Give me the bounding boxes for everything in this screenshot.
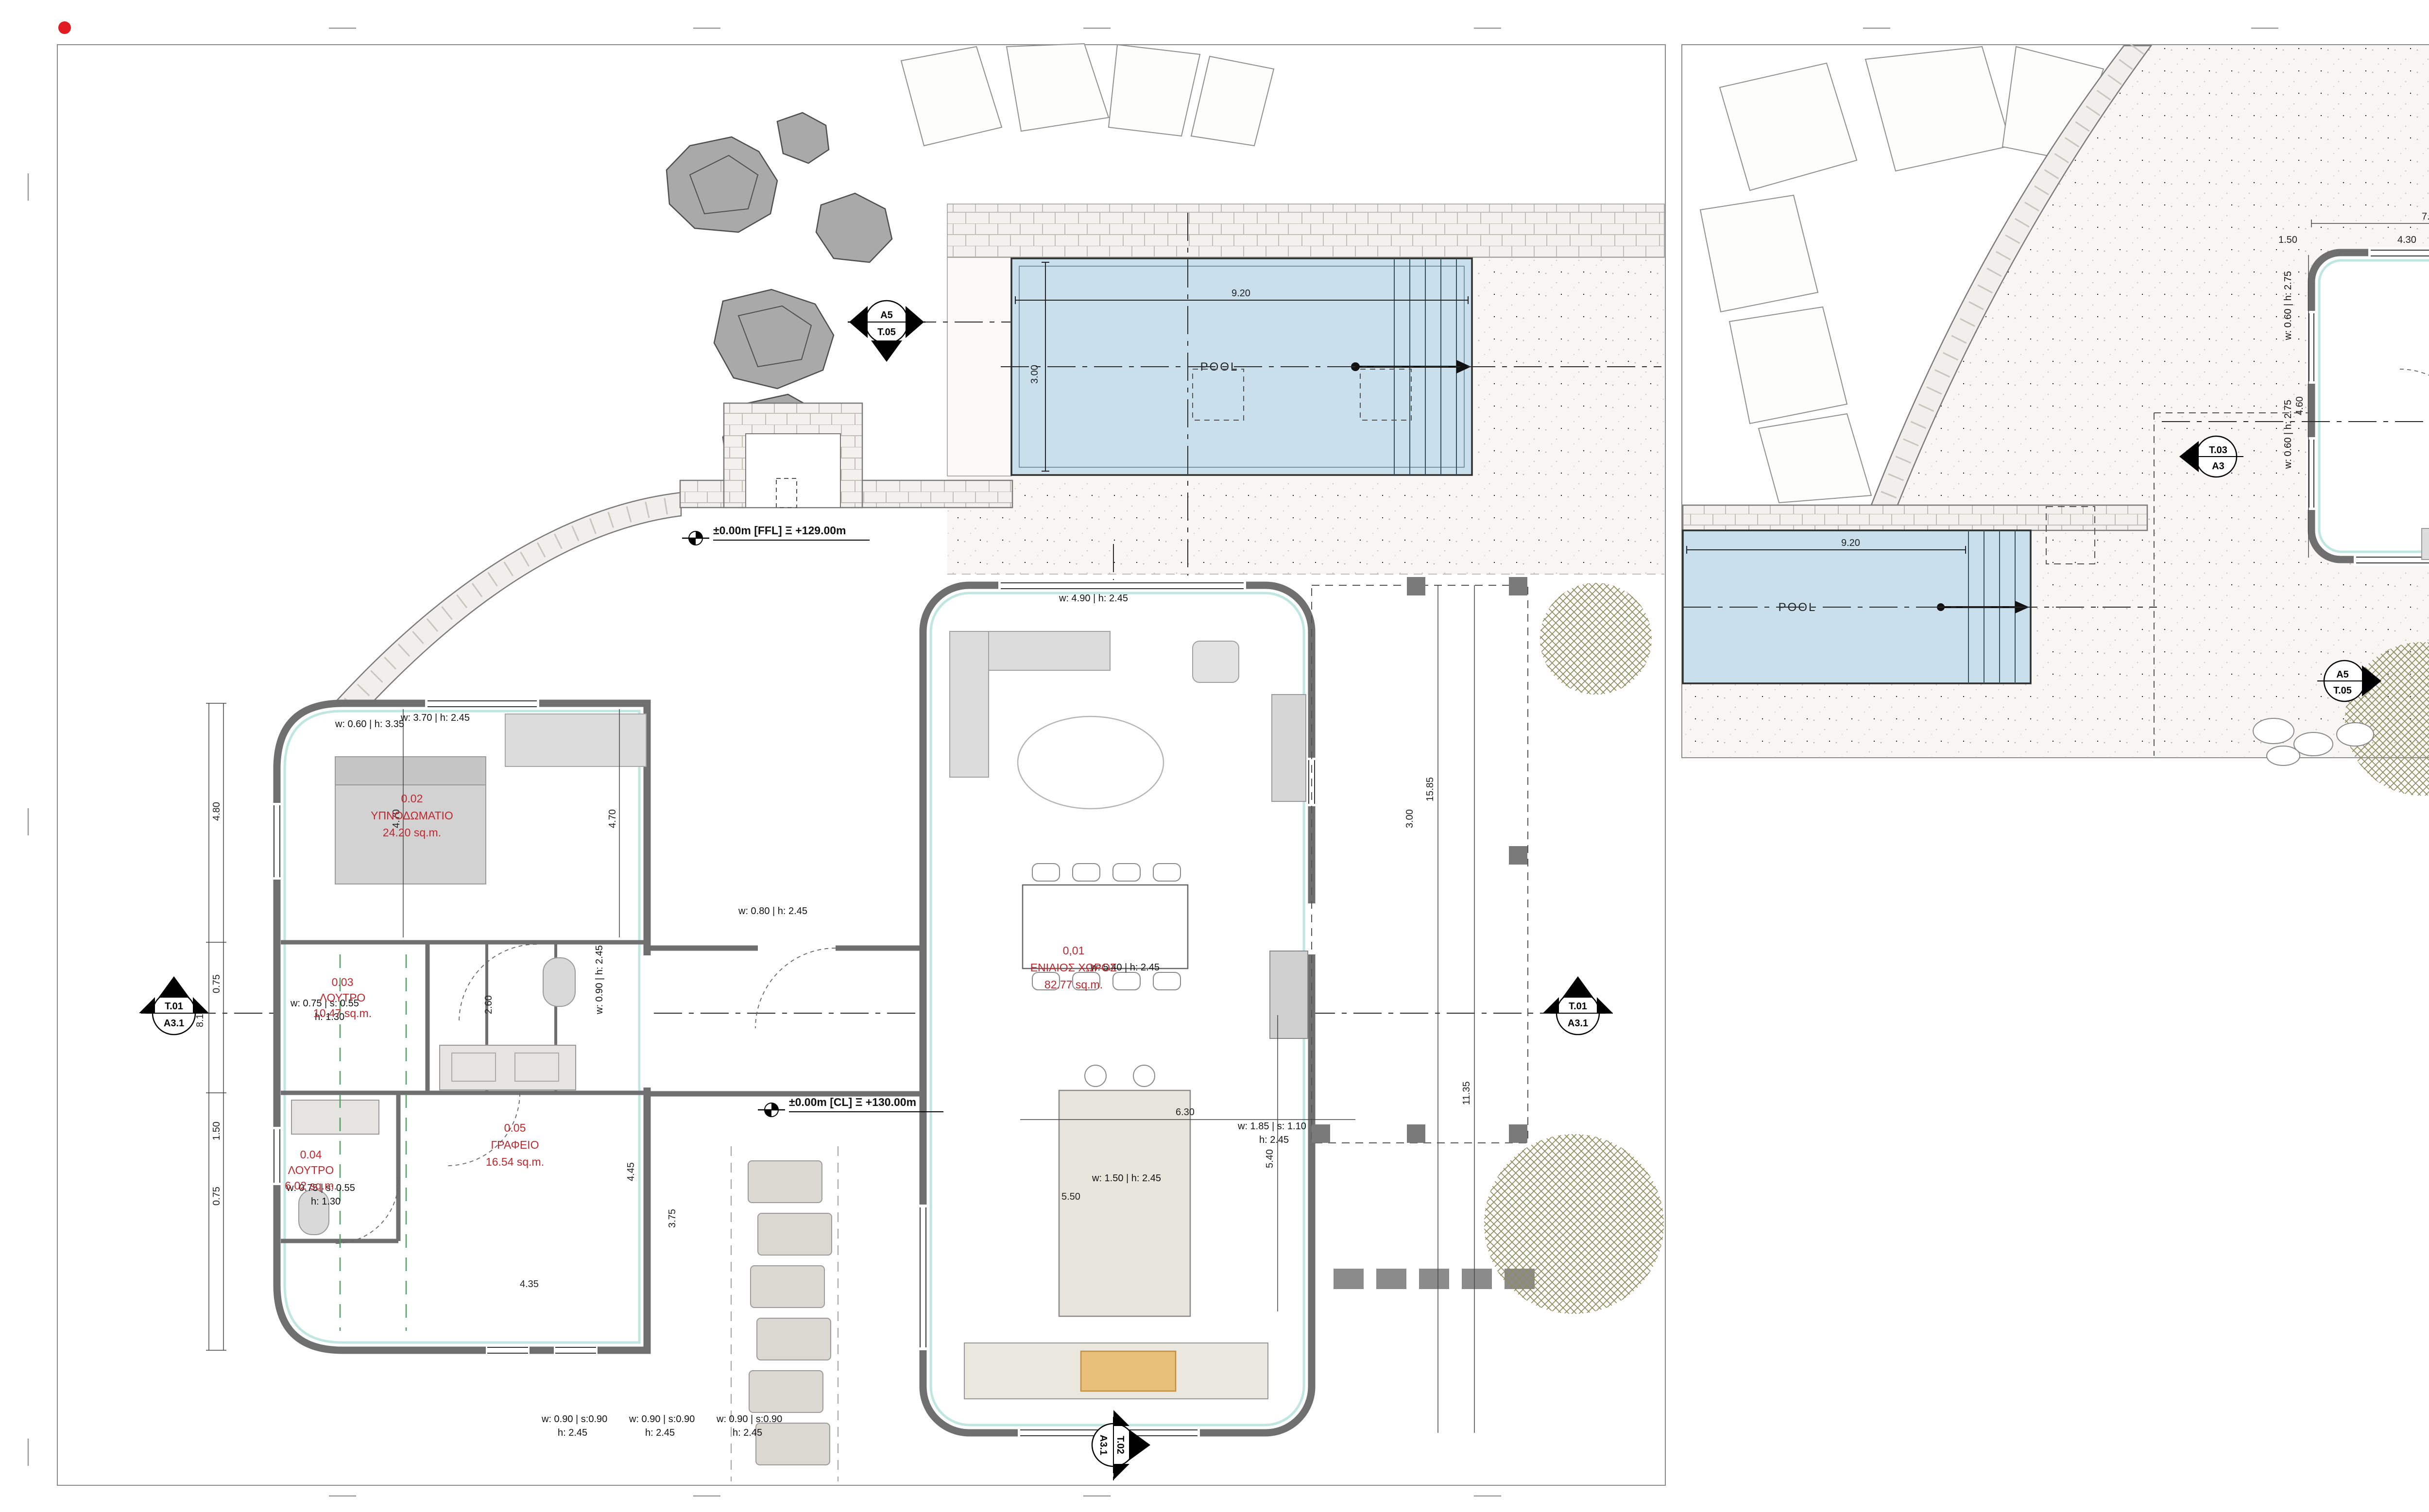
svg-text:0.05: 0.05 bbox=[504, 1121, 526, 1134]
svg-text:w: 0.90 | s:0.90: w: 0.90 | s:0.90 bbox=[716, 1414, 782, 1425]
right-wing bbox=[917, 580, 1317, 1439]
architectural-drawing-sheet: { "colors":{"accent_red":"#e01b22","room… bbox=[0, 0, 2429, 1502]
svg-text:2.60: 2.60 bbox=[483, 995, 494, 1014]
svg-text:3.75: 3.75 bbox=[667, 1209, 678, 1228]
svg-text:A3.1: A3.1 bbox=[164, 1018, 184, 1029]
svg-text:3.00: 3.00 bbox=[1404, 809, 1415, 828]
level-markers: ±0.00m [FFL] Ξ +129.00m ±0.00m [CL] Ξ +1… bbox=[682, 524, 943, 1117]
vanity-small bbox=[291, 1100, 379, 1134]
svg-text:15.85: 15.85 bbox=[1425, 777, 1436, 801]
sofa bbox=[950, 631, 989, 777]
svg-text:6.30: 6.30 bbox=[1176, 1107, 1195, 1118]
svg-text:4.80: 4.80 bbox=[211, 802, 222, 821]
svg-text:10.47 sq.m.: 10.47 sq.m. bbox=[313, 1007, 372, 1019]
dim: 9.20 bbox=[1232, 288, 1250, 299]
sheet1-ground-floor-plan: POOL 9.20 3.00 bbox=[57, 44, 1665, 1485]
kitchen-cabinet-orange bbox=[1081, 1351, 1176, 1391]
svg-text:h: 2.45: h: 2.45 bbox=[558, 1427, 587, 1438]
armchair bbox=[1193, 641, 1239, 682]
svg-text:h: 1.30: h: 1.30 bbox=[311, 1196, 341, 1207]
svg-text:0.02: 0.02 bbox=[401, 792, 423, 805]
svg-text:w: 0.60 | h: 2.75: w: 0.60 | h: 2.75 bbox=[2283, 400, 2293, 469]
svg-text:5.40: 5.40 bbox=[1265, 1149, 1275, 1168]
kitchen-island bbox=[1059, 1090, 1190, 1316]
dim: 9.20 bbox=[1841, 538, 1860, 548]
red-reference-dot bbox=[58, 21, 71, 34]
svg-text:w: 0.90 | h: 2.45: w: 0.90 | h: 2.45 bbox=[594, 945, 605, 1015]
fireplace bbox=[1270, 951, 1308, 1038]
svg-text:24.20 sq.m.: 24.20 sq.m. bbox=[383, 826, 441, 839]
svg-text:h: 2.45: h: 2.45 bbox=[645, 1427, 675, 1438]
tree bbox=[1484, 583, 1664, 1314]
svg-text:h: 2.45: h: 2.45 bbox=[1259, 1135, 1289, 1145]
svg-text:1.50: 1.50 bbox=[211, 1121, 222, 1140]
svg-text:0.04: 0.04 bbox=[300, 1148, 322, 1161]
level-ffl: ±0.00m [FFL] Ξ +129.00m bbox=[682, 524, 870, 545]
sheet2-guesthouse-plan: POOL 9.20 bbox=[1682, 45, 2429, 796]
left-wing bbox=[271, 698, 647, 1356]
svg-text:w: 0.60 | h: 3.35: w: 0.60 | h: 3.35 bbox=[335, 719, 404, 730]
svg-text:A5: A5 bbox=[880, 310, 893, 321]
svg-text:A3.1: A3.1 bbox=[1568, 1018, 1588, 1029]
svg-text:w: 0.60 | h: 2.75: w: 0.60 | h: 2.75 bbox=[2283, 271, 2293, 340]
svg-text:4.60: 4.60 bbox=[2294, 396, 2305, 415]
svg-text:6.02 sq.m.: 6.02 sq.m. bbox=[285, 1179, 337, 1192]
svg-text:w: 3.70 | h: 2.45: w: 3.70 | h: 2.45 bbox=[400, 713, 470, 723]
stone-slabs bbox=[901, 44, 1274, 146]
svg-text:0.75: 0.75 bbox=[211, 974, 222, 993]
toilet bbox=[543, 958, 575, 1006]
corridor bbox=[640, 943, 929, 1094]
svg-text:T.03: T.03 bbox=[2209, 445, 2227, 456]
tv-cabinet bbox=[1272, 695, 1306, 801]
svg-text:T.02: T.02 bbox=[1115, 1436, 1126, 1454]
dim: 3.00 bbox=[1029, 365, 1040, 384]
curved-stone-wall bbox=[317, 403, 1012, 743]
plan-canvas: POOL 9.20 3.00 bbox=[0, 0, 2429, 1502]
svg-text:w: 0.90 | s:0.90: w: 0.90 | s:0.90 bbox=[541, 1414, 607, 1425]
svg-text:T.01: T.01 bbox=[1569, 1001, 1587, 1012]
svg-text:±0.00m [CL] Ξ +130.00m: ±0.00m [CL] Ξ +130.00m bbox=[789, 1096, 916, 1108]
pergola bbox=[1312, 577, 1528, 1143]
svg-text:w: 1.85 | s: 1.10: w: 1.85 | s: 1.10 bbox=[1237, 1121, 1306, 1132]
svg-text:ΓΡΑΦΕΙΟ: ΓΡΑΦΕΙΟ bbox=[491, 1138, 539, 1151]
svg-text:4.35: 4.35 bbox=[520, 1279, 539, 1290]
wardrobe bbox=[505, 714, 646, 766]
svg-text:16.54 sq.m.: 16.54 sq.m. bbox=[486, 1155, 544, 1168]
svg-text:ΛΟΥΤΡΟ: ΛΟΥΤΡΟ bbox=[288, 1164, 334, 1176]
svg-text:5.50: 5.50 bbox=[1061, 1191, 1080, 1202]
svg-text:A5: A5 bbox=[2336, 669, 2349, 680]
level-cl: ±0.00m [CL] Ξ +130.00m bbox=[758, 1096, 943, 1117]
svg-text:ΥΠΝΟΔΩΜΑΤΙΟ: ΥΠΝΟΔΩΜΑΤΙΟ bbox=[371, 809, 453, 822]
svg-text:4.30: 4.30 bbox=[2397, 235, 2416, 245]
svg-text:h: 2.45: h: 2.45 bbox=[733, 1427, 762, 1438]
svg-text:4.45: 4.45 bbox=[626, 1162, 636, 1181]
svg-text:0,01: 0,01 bbox=[1063, 944, 1085, 957]
svg-text:11.35: 11.35 bbox=[1461, 1081, 1472, 1105]
svg-text:T.05: T.05 bbox=[877, 327, 896, 338]
svg-text:T.01: T.01 bbox=[165, 1001, 183, 1012]
svg-text:82.77 sq.m.: 82.77 sq.m. bbox=[1044, 978, 1103, 991]
svg-text:T.05: T.05 bbox=[2333, 685, 2352, 696]
svg-text:ΛΟΥΤΡΟ: ΛΟΥΤΡΟ bbox=[320, 991, 366, 1004]
svg-text:7.55: 7.55 bbox=[2422, 211, 2429, 222]
svg-text:0.75: 0.75 bbox=[211, 1187, 222, 1206]
svg-text:ΕΝΙΑΙΟΣ ΧΩΡΟΣ: ΕΝΙΑΙΟΣ ΧΩΡΟΣ bbox=[1030, 961, 1117, 974]
svg-text:w: 0.90 | s:0.90: w: 0.90 | s:0.90 bbox=[629, 1414, 695, 1425]
svg-text:0.03: 0.03 bbox=[332, 976, 354, 988]
svg-text:w: 0.80 | h: 2.45: w: 0.80 | h: 2.45 bbox=[738, 906, 807, 917]
dining-table bbox=[1023, 885, 1188, 968]
svg-text:w: 4.90 | h: 2.45: w: 4.90 | h: 2.45 bbox=[1059, 593, 1128, 604]
svg-text:4.70: 4.70 bbox=[607, 809, 618, 828]
vanity bbox=[440, 1045, 576, 1090]
svg-text:A3: A3 bbox=[2212, 461, 2224, 472]
svg-text:1.50: 1.50 bbox=[2278, 235, 2297, 245]
section-marker-a5-t05: A5 T.05 bbox=[848, 301, 925, 362]
svg-text:w: 1.50 | h: 2.45: w: 1.50 | h: 2.45 bbox=[1092, 1173, 1161, 1184]
svg-text:A3.1: A3.1 bbox=[1098, 1435, 1109, 1455]
svg-text:±0.00m [FFL] Ξ +129.00m: ±0.00m [FFL] Ξ +129.00m bbox=[713, 524, 846, 537]
section-marker-t01-right: T.01 A3.1 bbox=[1543, 976, 1613, 1035]
